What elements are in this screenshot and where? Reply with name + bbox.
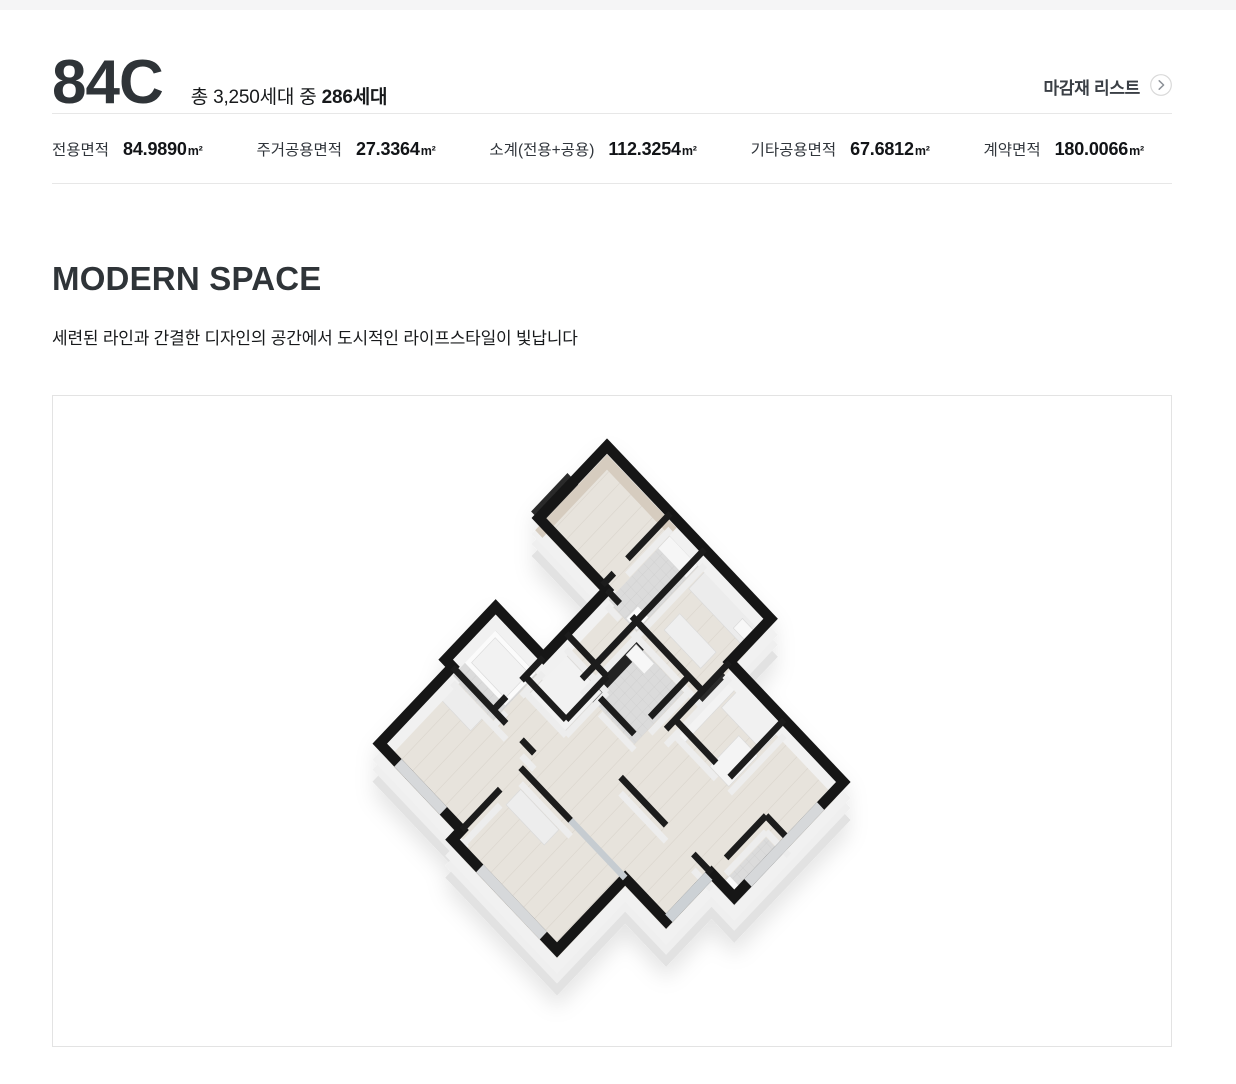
unit-type-title: 84C bbox=[52, 54, 163, 113]
area-item-residential-common: 주거공용면적 27.3364m² bbox=[256, 138, 435, 160]
area-measurements-row: 전용면적 84.9890m² 주거공용면적 27.3364m² 소계(전용+공용… bbox=[52, 114, 1172, 183]
area-item-subtotal: 소계(전용+공용) 112.3254m² bbox=[489, 138, 696, 160]
floorplan-group bbox=[329, 446, 884, 1046]
floorplan-3d-image bbox=[53, 396, 1171, 1046]
area-item-other-common: 기타공용면적 67.6812m² bbox=[751, 138, 930, 160]
floorplan-panel bbox=[52, 395, 1172, 1047]
unit-detail-section: 84C 총 3,250세대 중 286세대 마감재 리스트 전용면적 84.98… bbox=[52, 10, 1172, 1047]
divider-bottom bbox=[52, 183, 1172, 184]
finish-materials-list-label: 마감재 리스트 bbox=[1044, 74, 1140, 99]
household-summary-count: 286세대 bbox=[322, 87, 388, 108]
unit-header: 84C 총 3,250세대 중 286세대 마감재 리스트 bbox=[52, 10, 1172, 113]
section-subtitle: 세련된 라인과 간결한 디자인의 공간에서 도시적인 라이프스타일이 빛납니다 bbox=[52, 324, 1172, 349]
household-summary: 총 3,250세대 중 286세대 bbox=[191, 82, 388, 109]
section-title: MODERN SPACE bbox=[52, 260, 1172, 298]
finish-materials-list-link[interactable]: 마감재 리스트 bbox=[1044, 74, 1172, 99]
household-summary-prefix: 총 3,250세대 중 bbox=[191, 87, 322, 108]
previous-section-edge bbox=[0, 0, 1236, 10]
area-item-exclusive: 전용면적 84.9890m² bbox=[52, 138, 203, 160]
area-item-contract: 계약면적 180.0066m² bbox=[984, 138, 1144, 160]
chevron-right-circle-icon bbox=[1150, 74, 1172, 99]
